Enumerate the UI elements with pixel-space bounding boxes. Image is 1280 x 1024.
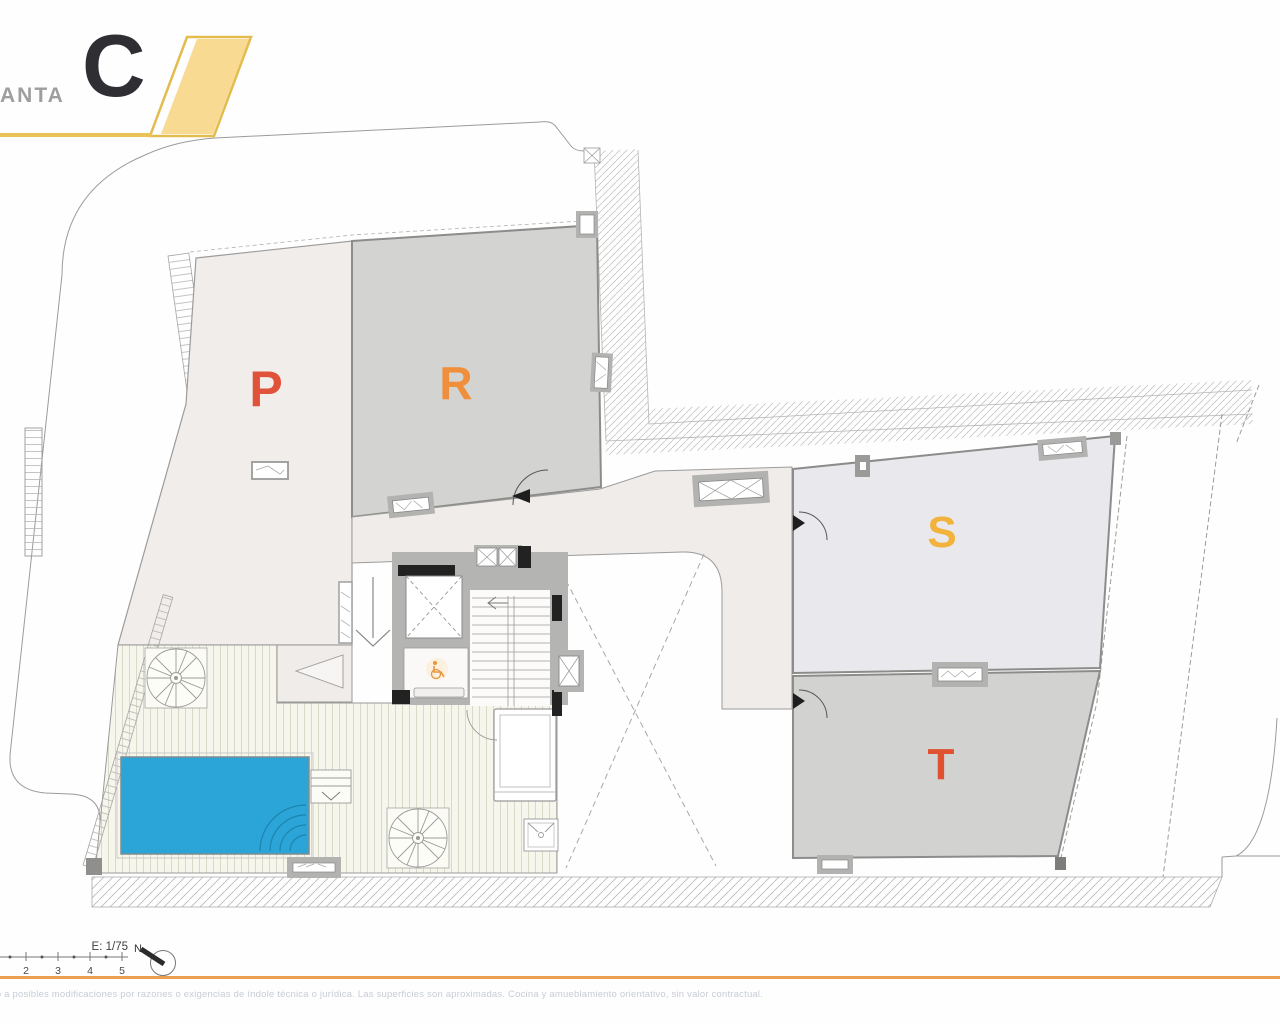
neighbor-hatch-band <box>594 150 1252 441</box>
room-p <box>118 241 352 645</box>
wall-black-2 <box>552 690 562 716</box>
shower-tray <box>524 819 558 851</box>
core <box>392 545 568 716</box>
void-cross <box>552 554 716 868</box>
pool-access-steps <box>311 770 351 803</box>
jacuzzi <box>494 709 556 801</box>
scale-bar: E: 1/75 2 3 4 5 <box>0 941 128 977</box>
room-label-r: R <box>439 360 472 406</box>
scale-label: E: 1/75 <box>92 941 128 953</box>
window-s-top <box>1037 436 1088 461</box>
north-label: N <box>134 943 142 955</box>
window-deck-bottom <box>287 857 341 878</box>
swimming-pool <box>117 753 313 858</box>
floorplan-page: ANTA C <box>0 0 1280 1024</box>
post-s-corner <box>1110 432 1121 445</box>
footer-accent-line <box>0 976 1280 979</box>
window-r-right <box>590 353 613 393</box>
left-louver <box>25 428 42 556</box>
room-label-t: T <box>928 743 955 787</box>
spiral-stair-1 <box>145 648 207 708</box>
room-label-p: P <box>249 364 282 414</box>
fence-post <box>86 858 102 875</box>
post-s-top <box>855 455 870 477</box>
post-t-corner <box>1055 857 1066 870</box>
room-r <box>352 225 601 517</box>
north-arrow-icon: N <box>134 943 175 976</box>
sidewalk-hatch <box>92 877 1222 907</box>
patio-shaft <box>554 650 584 692</box>
elevator-shaft <box>398 565 462 645</box>
hatch-start-box <box>584 148 600 163</box>
staircase <box>470 590 550 706</box>
window-r-top <box>576 211 598 238</box>
floorplan-drawing: E: 1/75 2 3 4 5 N <box>0 0 1280 1024</box>
window-s-t-divider <box>932 662 988 687</box>
window-p-interior <box>252 462 288 479</box>
wall-black-1 <box>552 595 562 621</box>
disclaimer-text: to a posibles modificaciones por razones… <box>0 989 1280 1000</box>
duct-boxes <box>474 545 531 569</box>
window-corridor-top <box>692 471 770 508</box>
wheelchair-icon <box>426 658 448 680</box>
window-t-bottom <box>817 855 853 874</box>
p-side-window <box>339 582 352 643</box>
ramp-arrow <box>356 577 390 646</box>
spiral-stair-2 <box>387 808 449 868</box>
room-label-s: S <box>927 511 956 555</box>
